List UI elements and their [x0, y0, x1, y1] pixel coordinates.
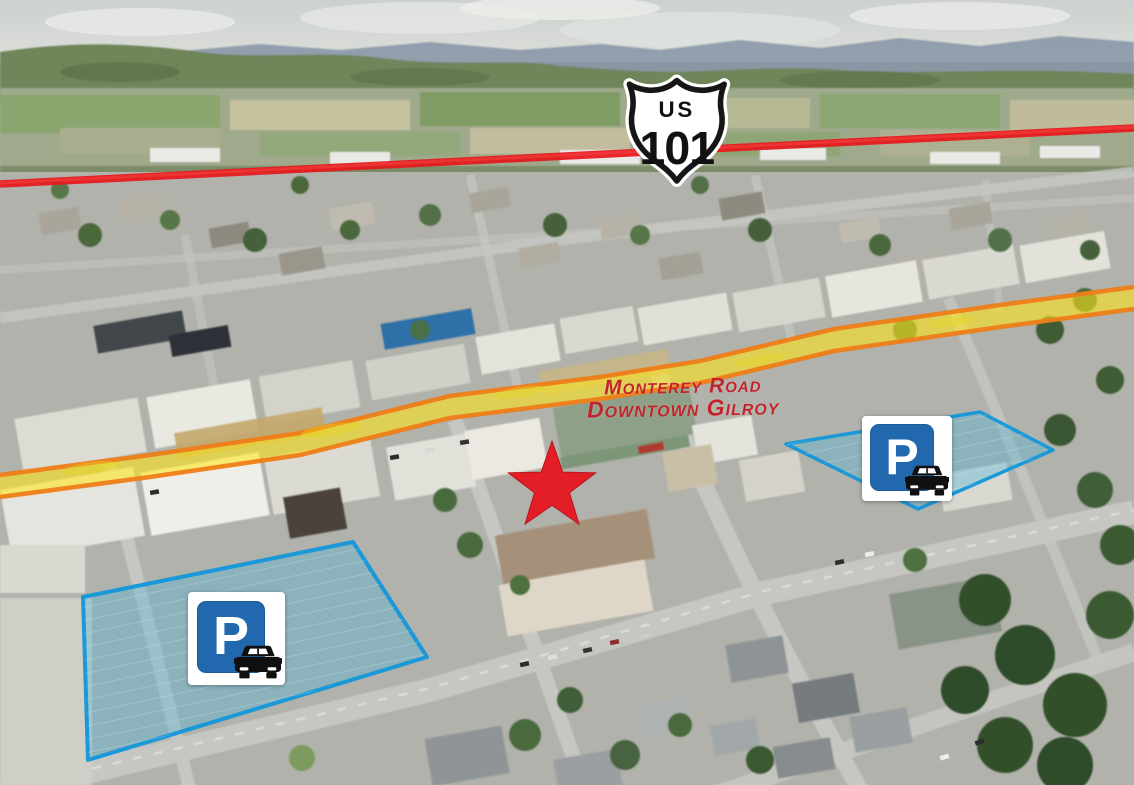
car-icon [234, 645, 282, 680]
shield-banner-text: US [659, 97, 696, 122]
parking-sign-left: P [188, 592, 285, 685]
shield-route-number: 101 [639, 122, 714, 174]
annotated-aerial-photo: US 101 Monterey Road Downtown Gilroy P P [0, 0, 1134, 785]
aerial-photo-canvas: US 101 [0, 0, 1134, 785]
car-icon [905, 465, 949, 497]
parking-sign-right: P [862, 416, 952, 501]
us-101-shield-icon: US 101 [629, 81, 724, 181]
